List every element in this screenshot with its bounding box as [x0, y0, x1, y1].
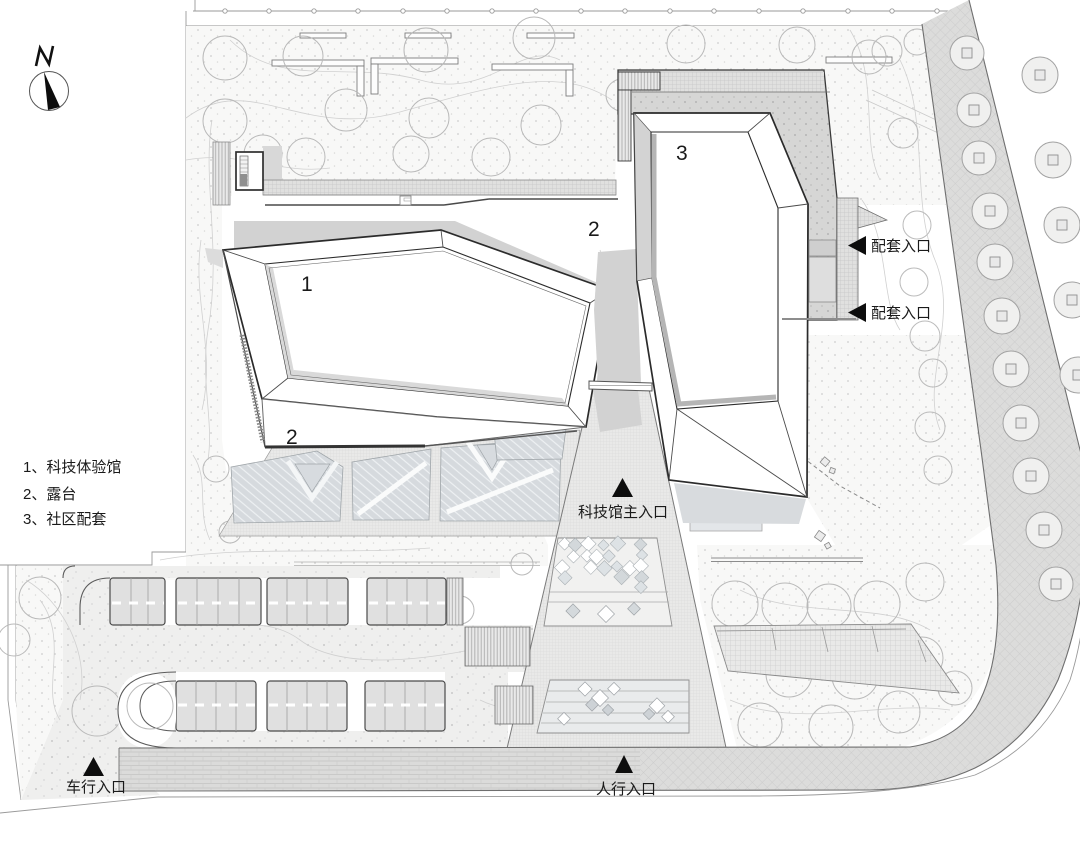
- svg-text:车行入口: 车行入口: [66, 779, 126, 796]
- svg-text:1、科技体验馆: 1、科技体验馆: [23, 459, 121, 476]
- svg-text:3、社区配套: 3、社区配套: [23, 511, 106, 528]
- svg-text:2: 2: [286, 426, 298, 449]
- svg-text:配套入口: 配套入口: [871, 238, 931, 255]
- svg-text:人行入口: 人行入口: [596, 781, 656, 798]
- svg-text:1: 1: [301, 273, 313, 296]
- svg-text:3: 3: [676, 142, 688, 165]
- svg-text:2: 2: [588, 218, 600, 241]
- svg-text:科技馆主入口: 科技馆主入口: [578, 504, 668, 521]
- svg-text:配套入口: 配套入口: [871, 305, 931, 322]
- svg-text:2、露台: 2、露台: [23, 486, 76, 503]
